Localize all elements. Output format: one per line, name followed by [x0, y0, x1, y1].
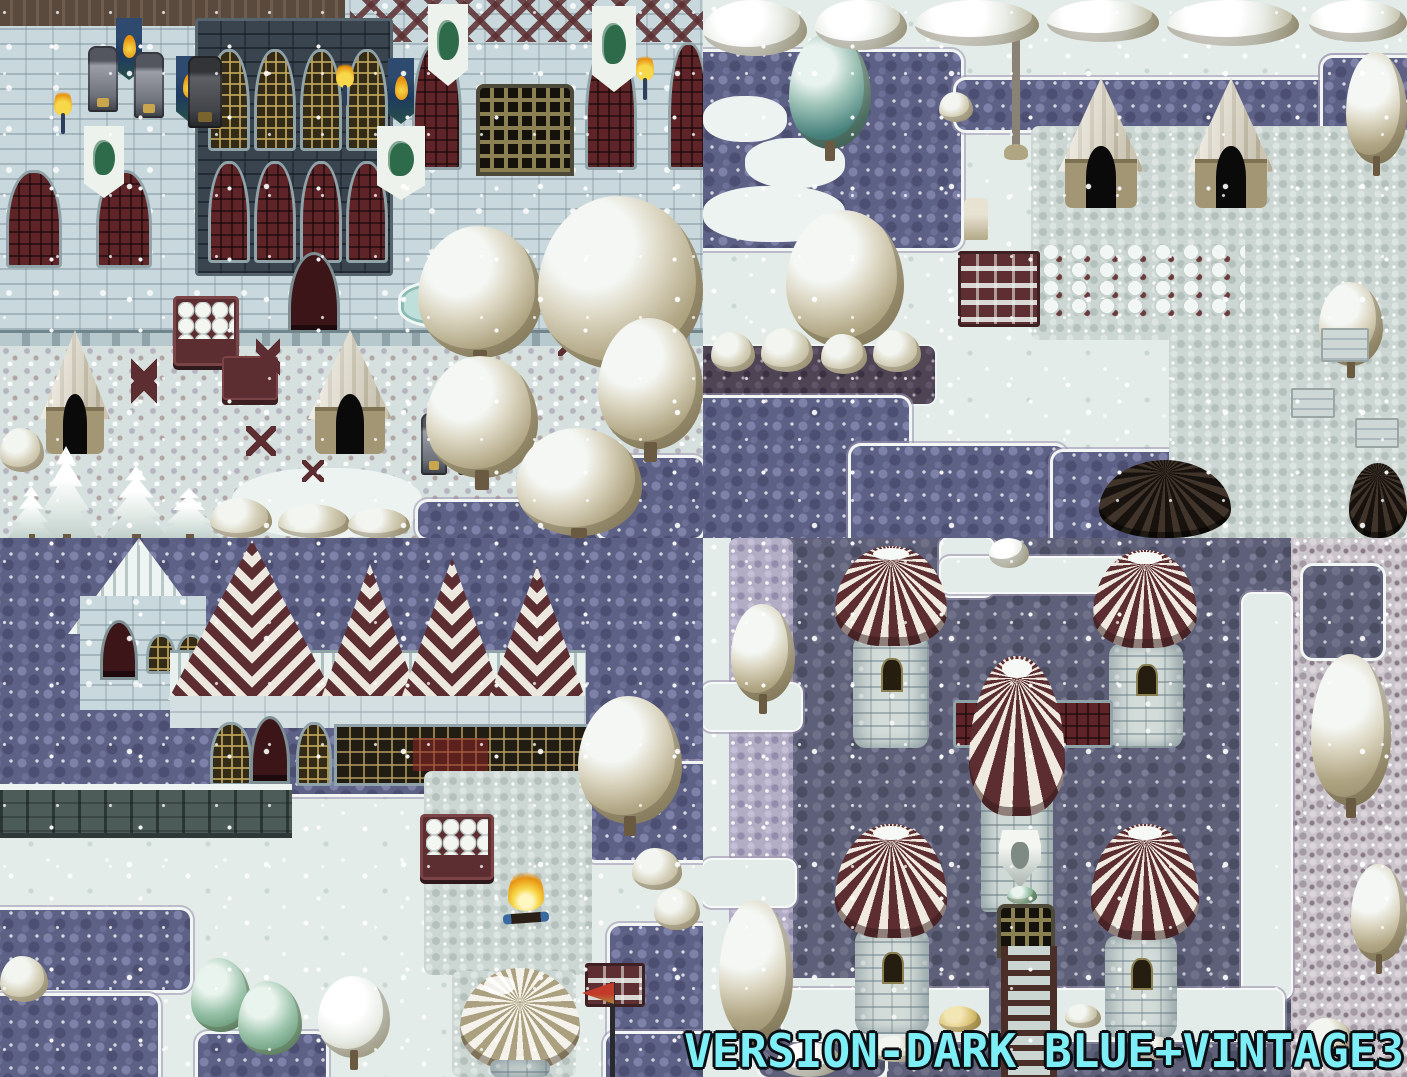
armor-trim — [97, 98, 109, 107]
flame-icon — [54, 88, 72, 116]
yurt-door — [1086, 146, 1115, 208]
stone-fence — [0, 784, 292, 838]
banner-emblem — [93, 140, 115, 175]
flame-icon — [508, 868, 545, 911]
brick-tile — [1291, 388, 1335, 418]
longhouse-roof — [402, 558, 502, 696]
gold-window — [254, 49, 296, 151]
snow-bush — [761, 328, 813, 372]
crest-emblem — [1011, 842, 1029, 870]
wall-banner — [428, 4, 468, 86]
gothic-window — [254, 161, 296, 263]
campfire — [503, 868, 549, 926]
gothic-window — [208, 161, 250, 263]
barrier-cross — [256, 328, 280, 386]
longhouse-roof — [168, 540, 336, 700]
flame-emblem — [123, 35, 136, 57]
villager-sprite — [964, 198, 988, 240]
signpost-base — [1004, 144, 1028, 160]
scene-town-longhouse — [0, 538, 703, 1077]
gothic-window — [6, 170, 62, 268]
roof-truss — [350, 0, 703, 42]
dark-pond — [0, 996, 158, 1077]
armor-trim — [198, 112, 212, 122]
roof-slope — [488, 566, 537, 700]
longhouse-roof — [488, 566, 586, 700]
torch-pole — [61, 113, 65, 134]
castle-tower — [853, 636, 929, 748]
torch-pole — [643, 78, 647, 100]
tower-roof — [835, 546, 947, 646]
snowy-tree — [815, 0, 907, 50]
tent-door — [336, 394, 365, 454]
ornate-pennant — [388, 58, 414, 124]
gold-window — [296, 722, 332, 786]
tower-window — [1131, 958, 1153, 990]
roof-slope — [402, 558, 452, 696]
snow-path — [1243, 594, 1291, 998]
snowy-tree — [915, 0, 1039, 46]
snowy-tree — [318, 976, 390, 1058]
torch-pole — [343, 85, 347, 106]
evergreen-bush — [238, 981, 302, 1055]
castle-tower — [1105, 936, 1177, 1038]
tent-door — [63, 394, 87, 454]
tower-roof — [1091, 824, 1199, 940]
roof-slope — [168, 540, 252, 700]
armor-trim — [143, 104, 155, 113]
brick-tile — [1321, 328, 1369, 362]
castle-tower — [1109, 644, 1183, 748]
wall-torch — [54, 88, 72, 134]
village-yurt — [1058, 78, 1144, 208]
path-cut — [703, 96, 787, 142]
wall-banner — [84, 126, 124, 198]
flame-icon — [336, 60, 354, 88]
wall-banner — [592, 6, 636, 92]
cart-load — [426, 819, 488, 855]
snow-bush — [873, 330, 921, 372]
grass-tuft — [1007, 886, 1037, 904]
tower-window — [881, 658, 903, 692]
market-tent — [308, 330, 392, 454]
tower-window — [1136, 664, 1158, 696]
stall-goods — [178, 302, 233, 340]
yurt-door — [1216, 146, 1245, 208]
window-glow — [413, 738, 489, 770]
flame-icon — [636, 52, 654, 81]
signpost — [1012, 28, 1020, 156]
rubble — [585, 963, 645, 1007]
tower-roof — [835, 824, 947, 938]
brick-tile — [1355, 418, 1399, 448]
banner-emblem — [437, 20, 459, 59]
roof-slope — [322, 564, 370, 696]
crop-rows — [1041, 245, 1245, 317]
keep-roof — [969, 656, 1065, 816]
castle-tower — [855, 930, 929, 1034]
gothic-window — [300, 161, 342, 263]
snowy-tree — [1167, 0, 1299, 46]
snow-bush — [654, 888, 700, 930]
flame-emblem — [395, 76, 408, 100]
snowy-tree — [1047, 0, 1159, 42]
barrier-cross — [131, 334, 157, 428]
village-yurt — [1188, 78, 1274, 208]
ruined-house — [958, 251, 1040, 327]
scene-castle-keep — [703, 538, 1407, 1077]
barrier-cross — [302, 460, 324, 482]
gold-window — [210, 722, 252, 786]
hand-cart — [420, 814, 494, 880]
wall-torch — [336, 60, 354, 106]
scene-winter-village — [703, 0, 1407, 538]
great-hall-facade — [195, 18, 393, 276]
snowy-tree — [1309, 0, 1407, 42]
tileset-preview-collage: VERSION-DARK BLUE+VINTAGE3 — [0, 0, 1407, 1077]
banner-emblem — [388, 141, 415, 177]
snow-bush — [711, 332, 755, 372]
portcullis-gate — [476, 84, 574, 176]
banner-emblem — [602, 23, 627, 64]
barrier-cross — [246, 426, 276, 456]
gothic-window — [668, 42, 703, 170]
caption-version-label: VERSION-DARK BLUE+VINTAGE3 — [684, 1026, 1407, 1077]
armor-trim — [429, 461, 439, 470]
armor-statue — [188, 56, 222, 128]
roof-slope — [537, 566, 586, 700]
scene-castle-courtyard — [0, 0, 703, 538]
evergreen-tree — [789, 33, 871, 149]
armor-statue — [88, 46, 118, 112]
market-tent — [40, 330, 110, 454]
snowy-tree — [703, 0, 807, 56]
dark-pond — [851, 446, 1065, 538]
snow-path — [703, 860, 795, 906]
wall-banner — [377, 126, 425, 200]
fire-logs — [503, 912, 550, 926]
wall-torch — [636, 52, 654, 100]
tower-window — [882, 952, 904, 984]
dark-patch — [1303, 566, 1383, 658]
snowy-tree — [989, 538, 1029, 568]
armor-statue — [134, 52, 164, 118]
tower-base — [490, 1060, 550, 1077]
